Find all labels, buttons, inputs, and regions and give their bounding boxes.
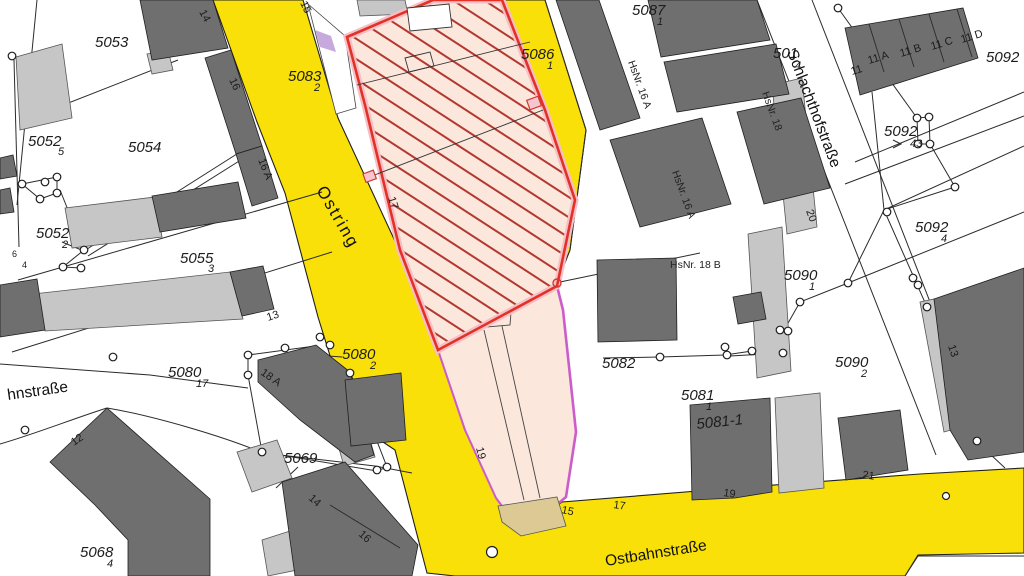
house-number-17-south: 17 <box>613 499 627 513</box>
svg-text:5: 5 <box>58 146 65 158</box>
svg-text:2: 2 <box>61 239 68 251</box>
house-number-15-south: 15 <box>560 504 574 518</box>
house-number-19-south: 19 <box>723 487 737 501</box>
map-canvas[interactable]: 5053 5054 5052 5 5052 2 5055 3 5080 17 5… <box>0 0 1024 576</box>
svg-text:2: 2 <box>369 360 376 372</box>
parcel-label-5054: 5054 <box>128 139 161 156</box>
svg-text:4: 4 <box>107 558 113 570</box>
svg-text:2: 2 <box>860 368 867 380</box>
svg-text:1: 1 <box>657 16 663 28</box>
parcel-label-5082: 5082 <box>602 355 636 372</box>
svg-text:1: 1 <box>809 281 815 293</box>
house-number-21: 21 <box>862 469 876 483</box>
svg-text:1: 1 <box>706 401 712 413</box>
svg-text:43: 43 <box>910 138 923 150</box>
svg-text:1: 1 <box>547 60 553 72</box>
parcel-label-5069: 5069 <box>284 450 318 467</box>
svg-text:4: 4 <box>941 233 947 245</box>
parcel-frag-6: 6 <box>12 249 17 259</box>
parcel-frag-4: 4 <box>22 260 27 270</box>
parcel-label-5053: 5053 <box>95 34 129 51</box>
building-18B <box>597 258 677 342</box>
parcel-label-5052-5: 5052 <box>28 133 62 150</box>
svg-text:2: 2 <box>313 82 320 94</box>
hsnr-18B: HsNr. 18 B <box>670 259 721 271</box>
svg-text:3: 3 <box>208 263 215 275</box>
svg-text:17: 17 <box>196 378 209 390</box>
parcel-label-5092: 5092 <box>986 49 1020 66</box>
